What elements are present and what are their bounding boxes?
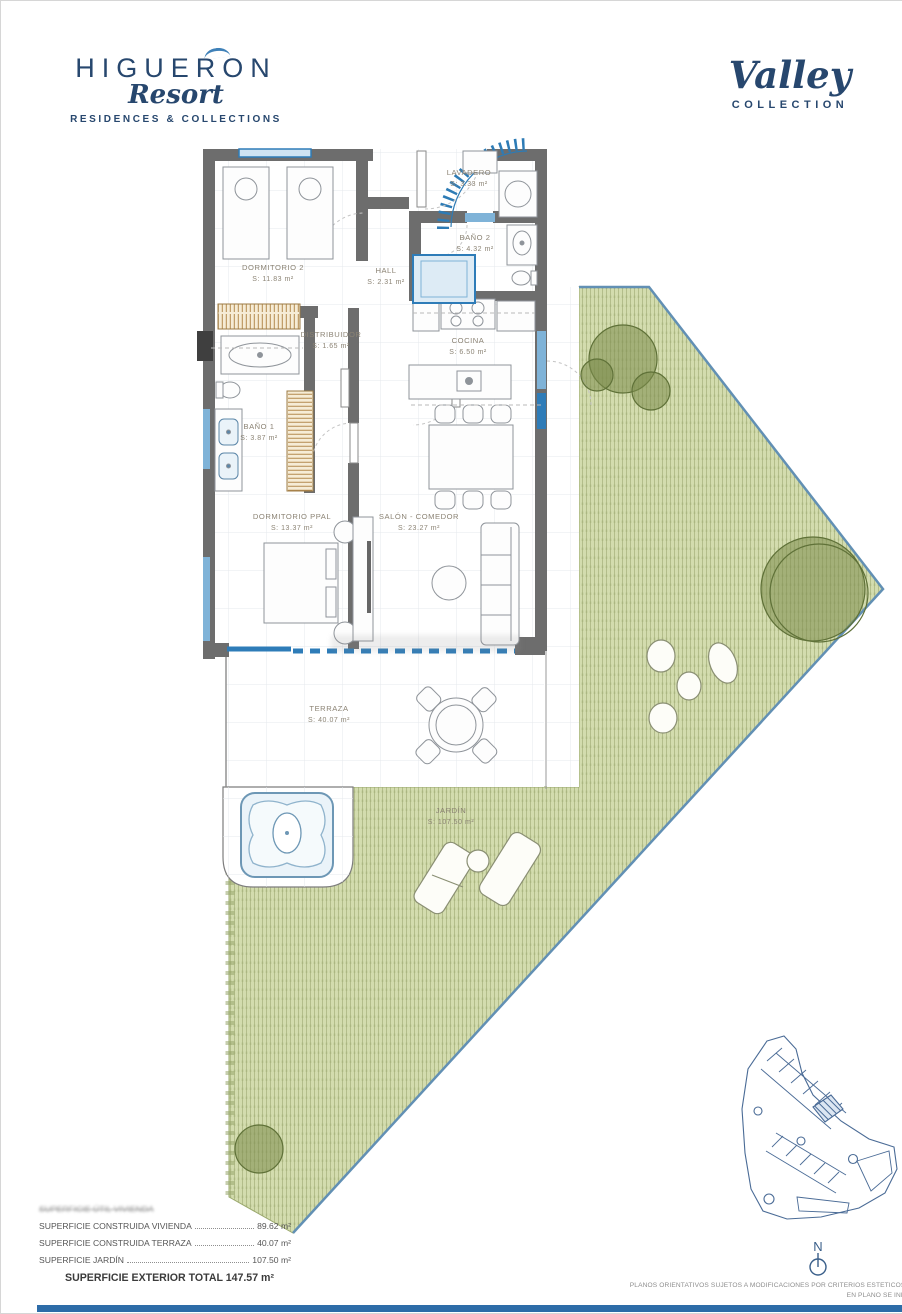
tree-3 <box>632 372 670 410</box>
entry-door-leaf <box>417 151 426 207</box>
room-label-dormitorio-ppal: DORMITORIO PPALS: 13.37 m² <box>253 510 331 536</box>
north-label: N <box>813 1239 822 1254</box>
bottom-accent-bar <box>37 1305 902 1312</box>
summary-row-jardin: SUPERFICIE JARDÍN 107.50 m² <box>39 1255 291 1265</box>
summary-total: SUPERFICIE EXTERIOR TOTAL 147.57 m² <box>65 1272 291 1284</box>
obscured-summary-line: SUPERFICIE ÚTIL VIVIENDA <box>39 1204 292 1214</box>
plunge-pool <box>241 793 333 877</box>
tree-4 <box>761 537 865 641</box>
wardrobe-ppal <box>287 391 313 491</box>
summary-row-vivienda: SUPERFICIE CONSTRUIDA VIVIENDA 89.62 m² <box>39 1221 291 1231</box>
summary-row-terraza: SUPERFICIE CONSTRUIDA TERRAZA 40.07 m² <box>39 1238 291 1248</box>
garden-side-table <box>467 850 489 872</box>
room-label-cocina: COCINAS: 6.50 m² <box>449 334 487 360</box>
shower <box>413 255 475 303</box>
tree-2 <box>581 359 613 391</box>
north-compass-icon <box>810 1253 826 1275</box>
floor-plan-canvas <box>1 1 902 1313</box>
room-label-dormitorio2: DORMITORIO 2S: 11.83 m² <box>242 261 304 287</box>
room-label-bano2: BAÑO 2S: 4.32 m² <box>456 231 494 257</box>
stone-4 <box>649 703 677 733</box>
pillow-1 <box>235 178 257 200</box>
watermark <box>331 635 521 652</box>
disclaimer-line-1: PLANOS ORIENTATIVOS SUJETOS A MODIFICACI… <box>511 1281 902 1291</box>
sofa <box>481 523 519 645</box>
coffee-table <box>432 566 466 600</box>
room-label-jardin: JARDÍNS: 107.50 m² <box>428 804 474 830</box>
stone-2 <box>677 672 701 700</box>
room-label-lavadero: LAVADEROS: 3.33 m² <box>447 166 492 192</box>
dining-table <box>429 425 513 489</box>
room-label-distribuidor: DISTRIBUIDORS: 1.65 m² <box>301 328 362 354</box>
pillow-2 <box>299 178 321 200</box>
wardrobe-dorm2 <box>218 304 300 329</box>
floor-plan-page: HIGUERON Resort RESIDENCES & COLLECTIONS… <box>0 0 902 1314</box>
disclaimer-line-2: EN PLANO SE INDICAN LAS SUPERFICIES ÚTIL… <box>511 1291 902 1301</box>
room-label-salon-comedor: SALÓN - COMEDORS: 23.27 m² <box>379 510 459 536</box>
toilet-2 <box>512 271 530 285</box>
site-key-map <box>742 1036 897 1219</box>
room-label-bano1: BAÑO 1S: 3.87 m² <box>240 420 278 446</box>
room-label-hall: HALLS: 2.31 m² <box>367 264 405 290</box>
tree-5 <box>235 1125 283 1173</box>
stone-1 <box>647 640 675 672</box>
room-label-terraza: TERRAZAS: 40.07 m² <box>308 702 350 728</box>
surface-summary: SUPERFICIE ÚTIL VIVIENDA SUPERFICIE CONS… <box>39 1204 291 1284</box>
